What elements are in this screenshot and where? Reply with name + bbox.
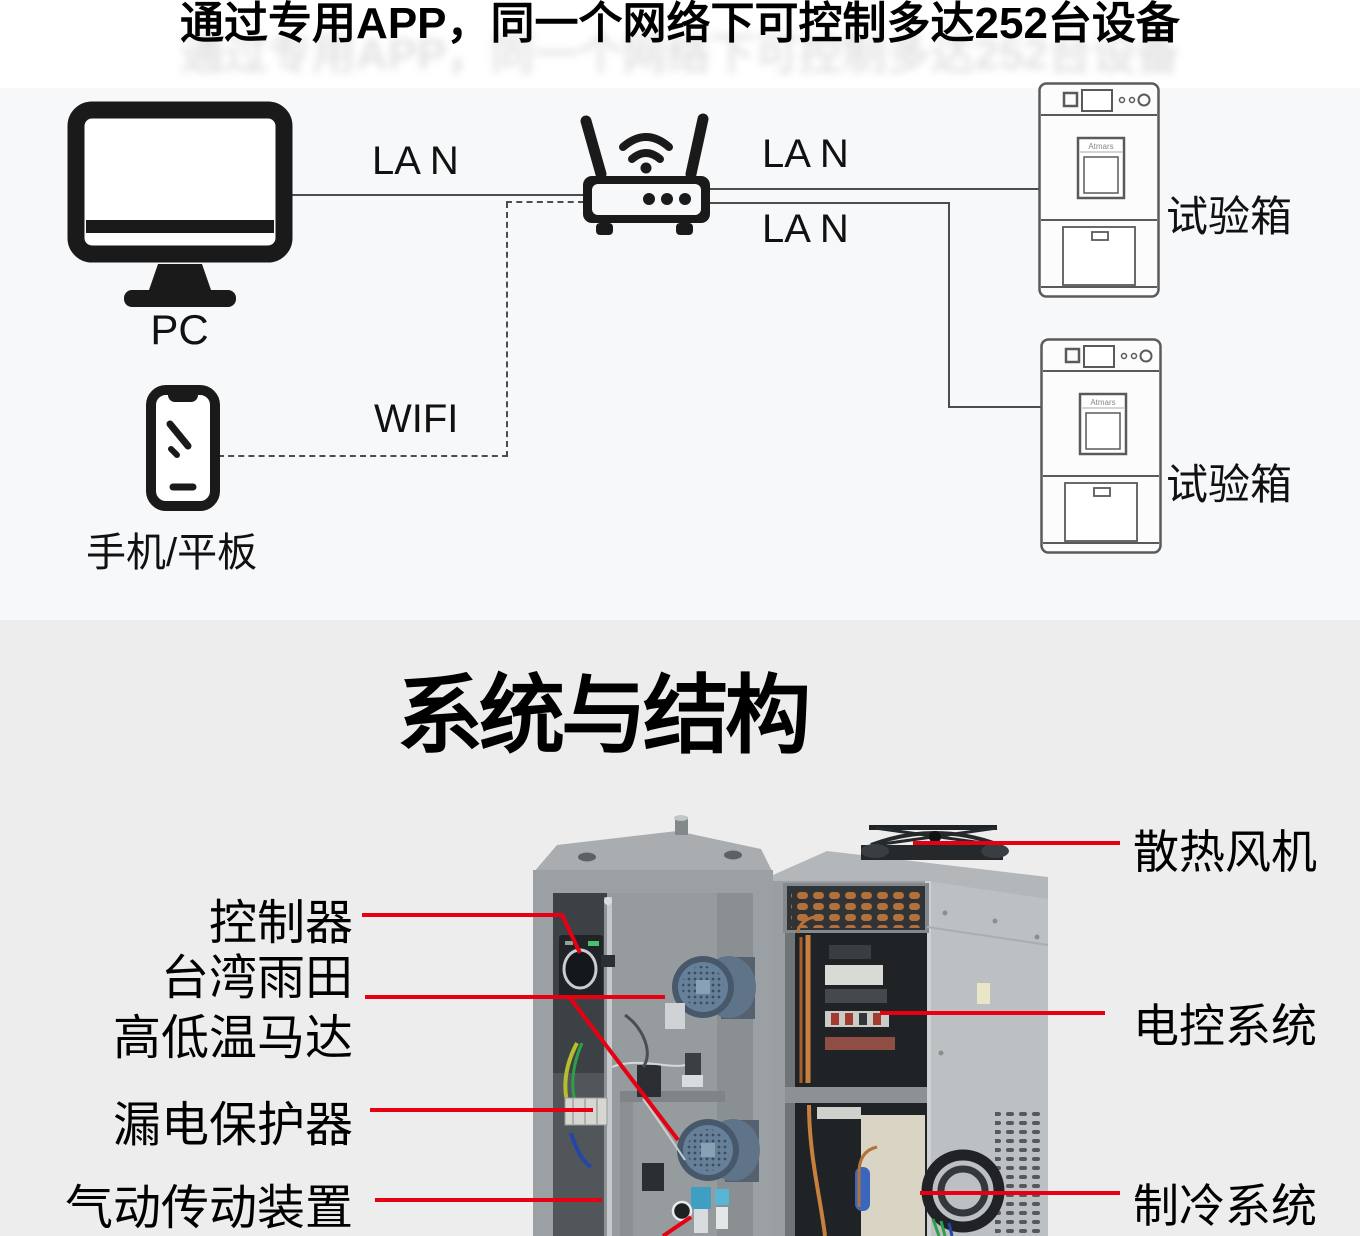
cooling-fan <box>861 825 1009 860</box>
structure-section: 系统与结构 <box>0 620 1360 1236</box>
controller-panel <box>559 935 603 999</box>
chamber-label-bottom: 试验箱 <box>1166 451 1292 512</box>
line-pc-router <box>292 194 584 196</box>
wifi-label: WIFI <box>374 397 458 442</box>
callout-label-motor: 台湾雨田 高低温马达 <box>113 949 353 1069</box>
section-heading: 系统与结构 <box>397 645 807 770</box>
lan-label-pc: LA N <box>372 139 459 184</box>
pc-label: PC <box>62 306 297 354</box>
test-chamber-icon-top: Atmars <box>1038 82 1160 298</box>
line-corner-vertical <box>948 202 950 408</box>
line-wifi-router <box>506 201 584 203</box>
lan-label-bottom: LA N <box>762 207 849 252</box>
chamber-brand-text: Atmars <box>1090 398 1115 407</box>
chamber-label-top: 试验箱 <box>1166 183 1292 244</box>
callout-label-electric: 电控系统 <box>1133 990 1317 1056</box>
pc-monitor-icon <box>62 96 297 308</box>
line-router-corner <box>709 202 950 204</box>
page-root: 通过专用APP，同一个网络下可控制多达252台设备 通过专用APP，同一个网络下… <box>0 0 1360 1236</box>
motor-lower <box>677 1119 760 1182</box>
line-corner-chamber2 <box>948 406 1041 408</box>
line-router-chamber1 <box>709 188 1039 190</box>
chamber-brand-text: Atmars <box>1088 142 1113 151</box>
line-wifi-vertical <box>506 202 508 457</box>
line-wifi-phone <box>218 455 508 457</box>
page-title: 通过专用APP，同一个网络下可控制多达252台设备 <box>0 0 1360 51</box>
phone-icon <box>145 384 221 512</box>
callout-label-fan: 散热风机 <box>1133 816 1317 882</box>
condenser-grille <box>783 883 929 933</box>
lan-label-top: LA N <box>762 132 849 177</box>
leakage-protector-device <box>565 1098 607 1125</box>
wifi-waves-icon <box>623 137 669 147</box>
phone-label: 手机/平板 <box>86 520 257 578</box>
callout-label-controller: 控制器 <box>209 883 353 953</box>
callout-label-motor-line1: 台湾雨田 <box>113 949 353 1009</box>
callout-label-motor-line2: 高低温马达 <box>113 1009 353 1069</box>
callout-label-refrigeration: 制冷系统 <box>1133 1170 1317 1236</box>
test-chamber-icon-bottom: Atmars <box>1040 338 1162 554</box>
callout-label-pneumatic: 气动传动装置 <box>65 1168 353 1236</box>
network-diagram-section: 通过专用APP，同一个网络下可控制多达252台设备 通过专用APP，同一个网络下… <box>0 0 1360 620</box>
machine-photo <box>525 815 1060 1236</box>
left-cabinet <box>533 815 773 1236</box>
router-icon <box>575 110 717 238</box>
right-cabinet <box>773 825 1048 1236</box>
callout-label-leakage: 漏电保护器 <box>113 1085 353 1155</box>
